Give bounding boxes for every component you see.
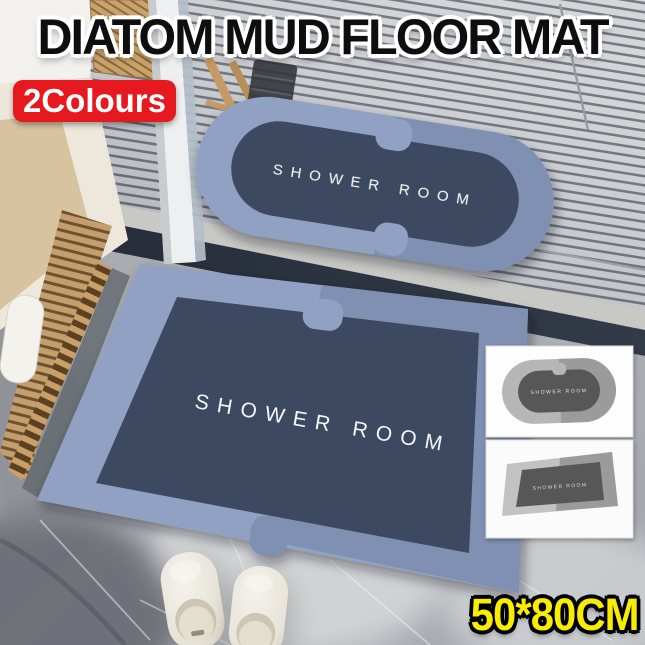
grey-oval-joint-tab <box>552 363 566 375</box>
wall-panel <box>0 0 96 84</box>
colours-badge: 2Colours <box>13 80 176 122</box>
thumbnail-grey-oval: SHOWER ROOM <box>486 346 633 437</box>
product-banner: SHOWER ROOM SHOWER ROOM SHOWER ROOM SHOW… <box>0 0 645 645</box>
thumbnail-grey-rect: SHOWER ROOM <box>486 440 633 538</box>
size-label: 50*80CM <box>471 589 639 641</box>
